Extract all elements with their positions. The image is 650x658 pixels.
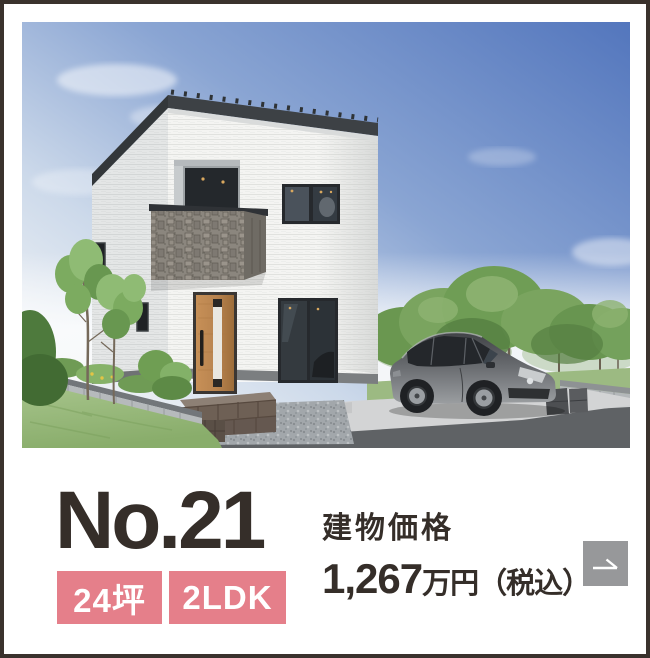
house-exterior-illustration	[22, 22, 630, 448]
diagonal-arrow-right-icon	[583, 541, 628, 586]
cloud	[468, 148, 536, 166]
door-handle	[200, 330, 204, 366]
entrance-door	[193, 292, 237, 394]
car-rear-wheel	[400, 379, 434, 413]
detail-arrow-button[interactable]	[583, 541, 628, 586]
property-listing-card: No.21 24坪 2LDK 建物価格 1,267万円（税込）	[0, 0, 650, 658]
listing-number: No.21	[55, 478, 263, 564]
balcony-parapet	[149, 204, 268, 291]
tag-badges: 24坪 2LDK	[57, 571, 286, 624]
cloud	[57, 64, 177, 96]
price-block: 建物価格 1,267万円（税込）	[322, 512, 590, 603]
first-floor-window	[278, 298, 338, 383]
door-glass-strip	[213, 299, 222, 387]
property-photo	[22, 22, 630, 448]
second-floor-window	[282, 184, 340, 224]
area-badge: 24坪	[57, 571, 162, 624]
car-emblem	[527, 378, 533, 384]
car-front-wheel	[466, 380, 502, 416]
car-grille	[508, 388, 550, 399]
layout-badge: 2LDK	[169, 571, 286, 624]
price-label: 建物価格	[322, 512, 590, 546]
car-mirror	[486, 362, 495, 368]
price-value: 1,267	[322, 555, 422, 603]
price-unit: 万円（税込）	[422, 560, 590, 602]
